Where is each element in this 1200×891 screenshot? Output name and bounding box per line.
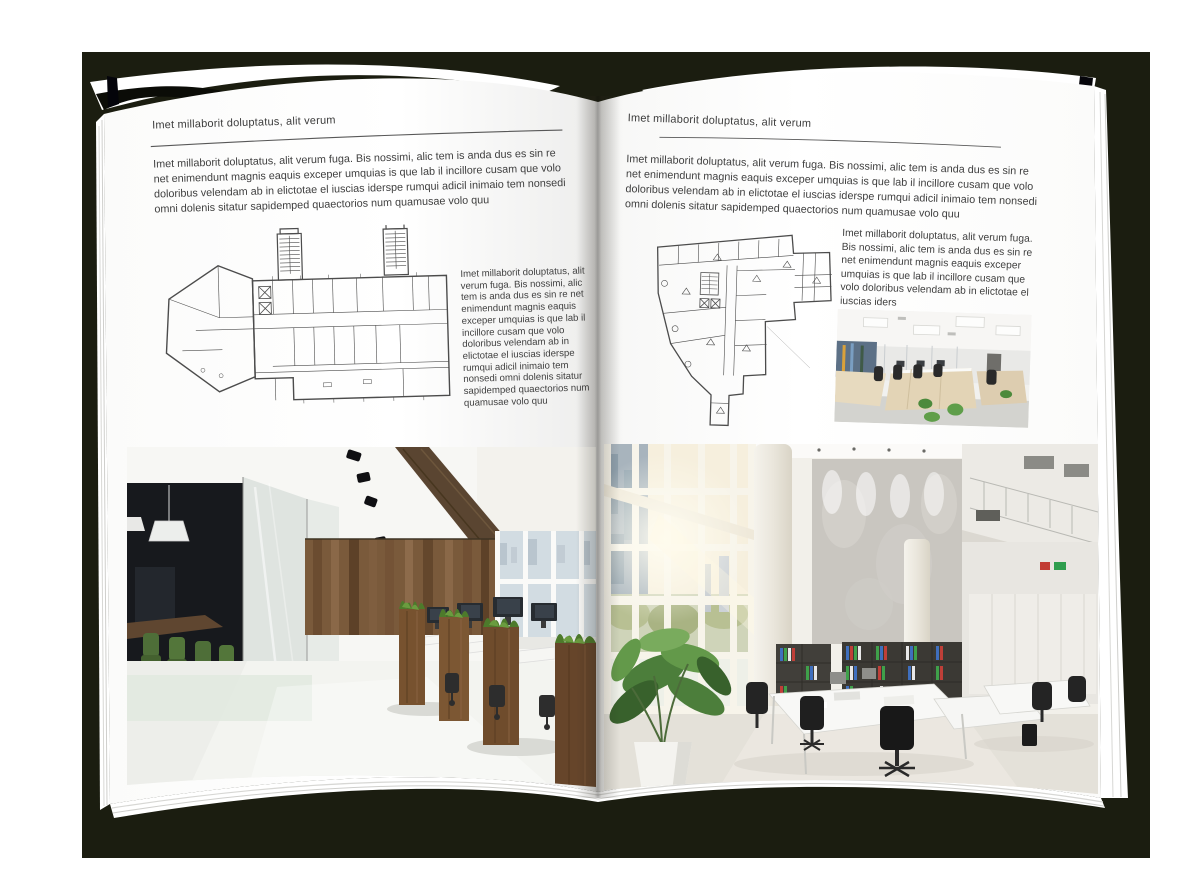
photo-office-small <box>834 309 1031 428</box>
plan-bay-marks <box>657 252 821 416</box>
waste-bin <box>1022 724 1037 746</box>
concrete-wall <box>812 459 962 644</box>
stair-tower-icon <box>277 223 408 280</box>
elevator-shaft-icon <box>259 286 272 314</box>
photo-office-right-large <box>604 444 1098 796</box>
photo-office-left-large <box>127 447 596 792</box>
floor-plan-left <box>159 223 456 421</box>
stair-core-icon <box>700 272 721 308</box>
left-page-rule <box>150 128 564 150</box>
plan-partitions <box>168 259 450 403</box>
ac-grille-icon <box>976 510 1000 521</box>
plan-outer-walls <box>164 259 450 403</box>
floor-plan-right <box>638 223 840 437</box>
right-page-side-text: Imet millaborit doluptatus, alit verum f… <box>840 227 1038 314</box>
floor <box>127 661 596 792</box>
pendant-lamp-icon <box>149 521 189 541</box>
first-aid-sign-icon <box>1040 562 1050 570</box>
exit-sign-icon <box>1054 562 1066 570</box>
left-page-kicker: Imet millaborit doluptatus, alit verum <box>152 114 336 131</box>
plan-outer-walls <box>652 231 833 428</box>
left-page-intro: Imet millaborit doluptatus, alit verum f… <box>153 146 571 218</box>
meeting-room <box>127 483 243 690</box>
right-page-intro: Imet millaborit doluptatus, alit verum f… <box>625 152 1043 225</box>
book-spine <box>576 96 620 798</box>
right-page-rule <box>625 132 1037 155</box>
right-page-kicker: Imet millaborit doluptatus, alit verum <box>627 112 811 130</box>
